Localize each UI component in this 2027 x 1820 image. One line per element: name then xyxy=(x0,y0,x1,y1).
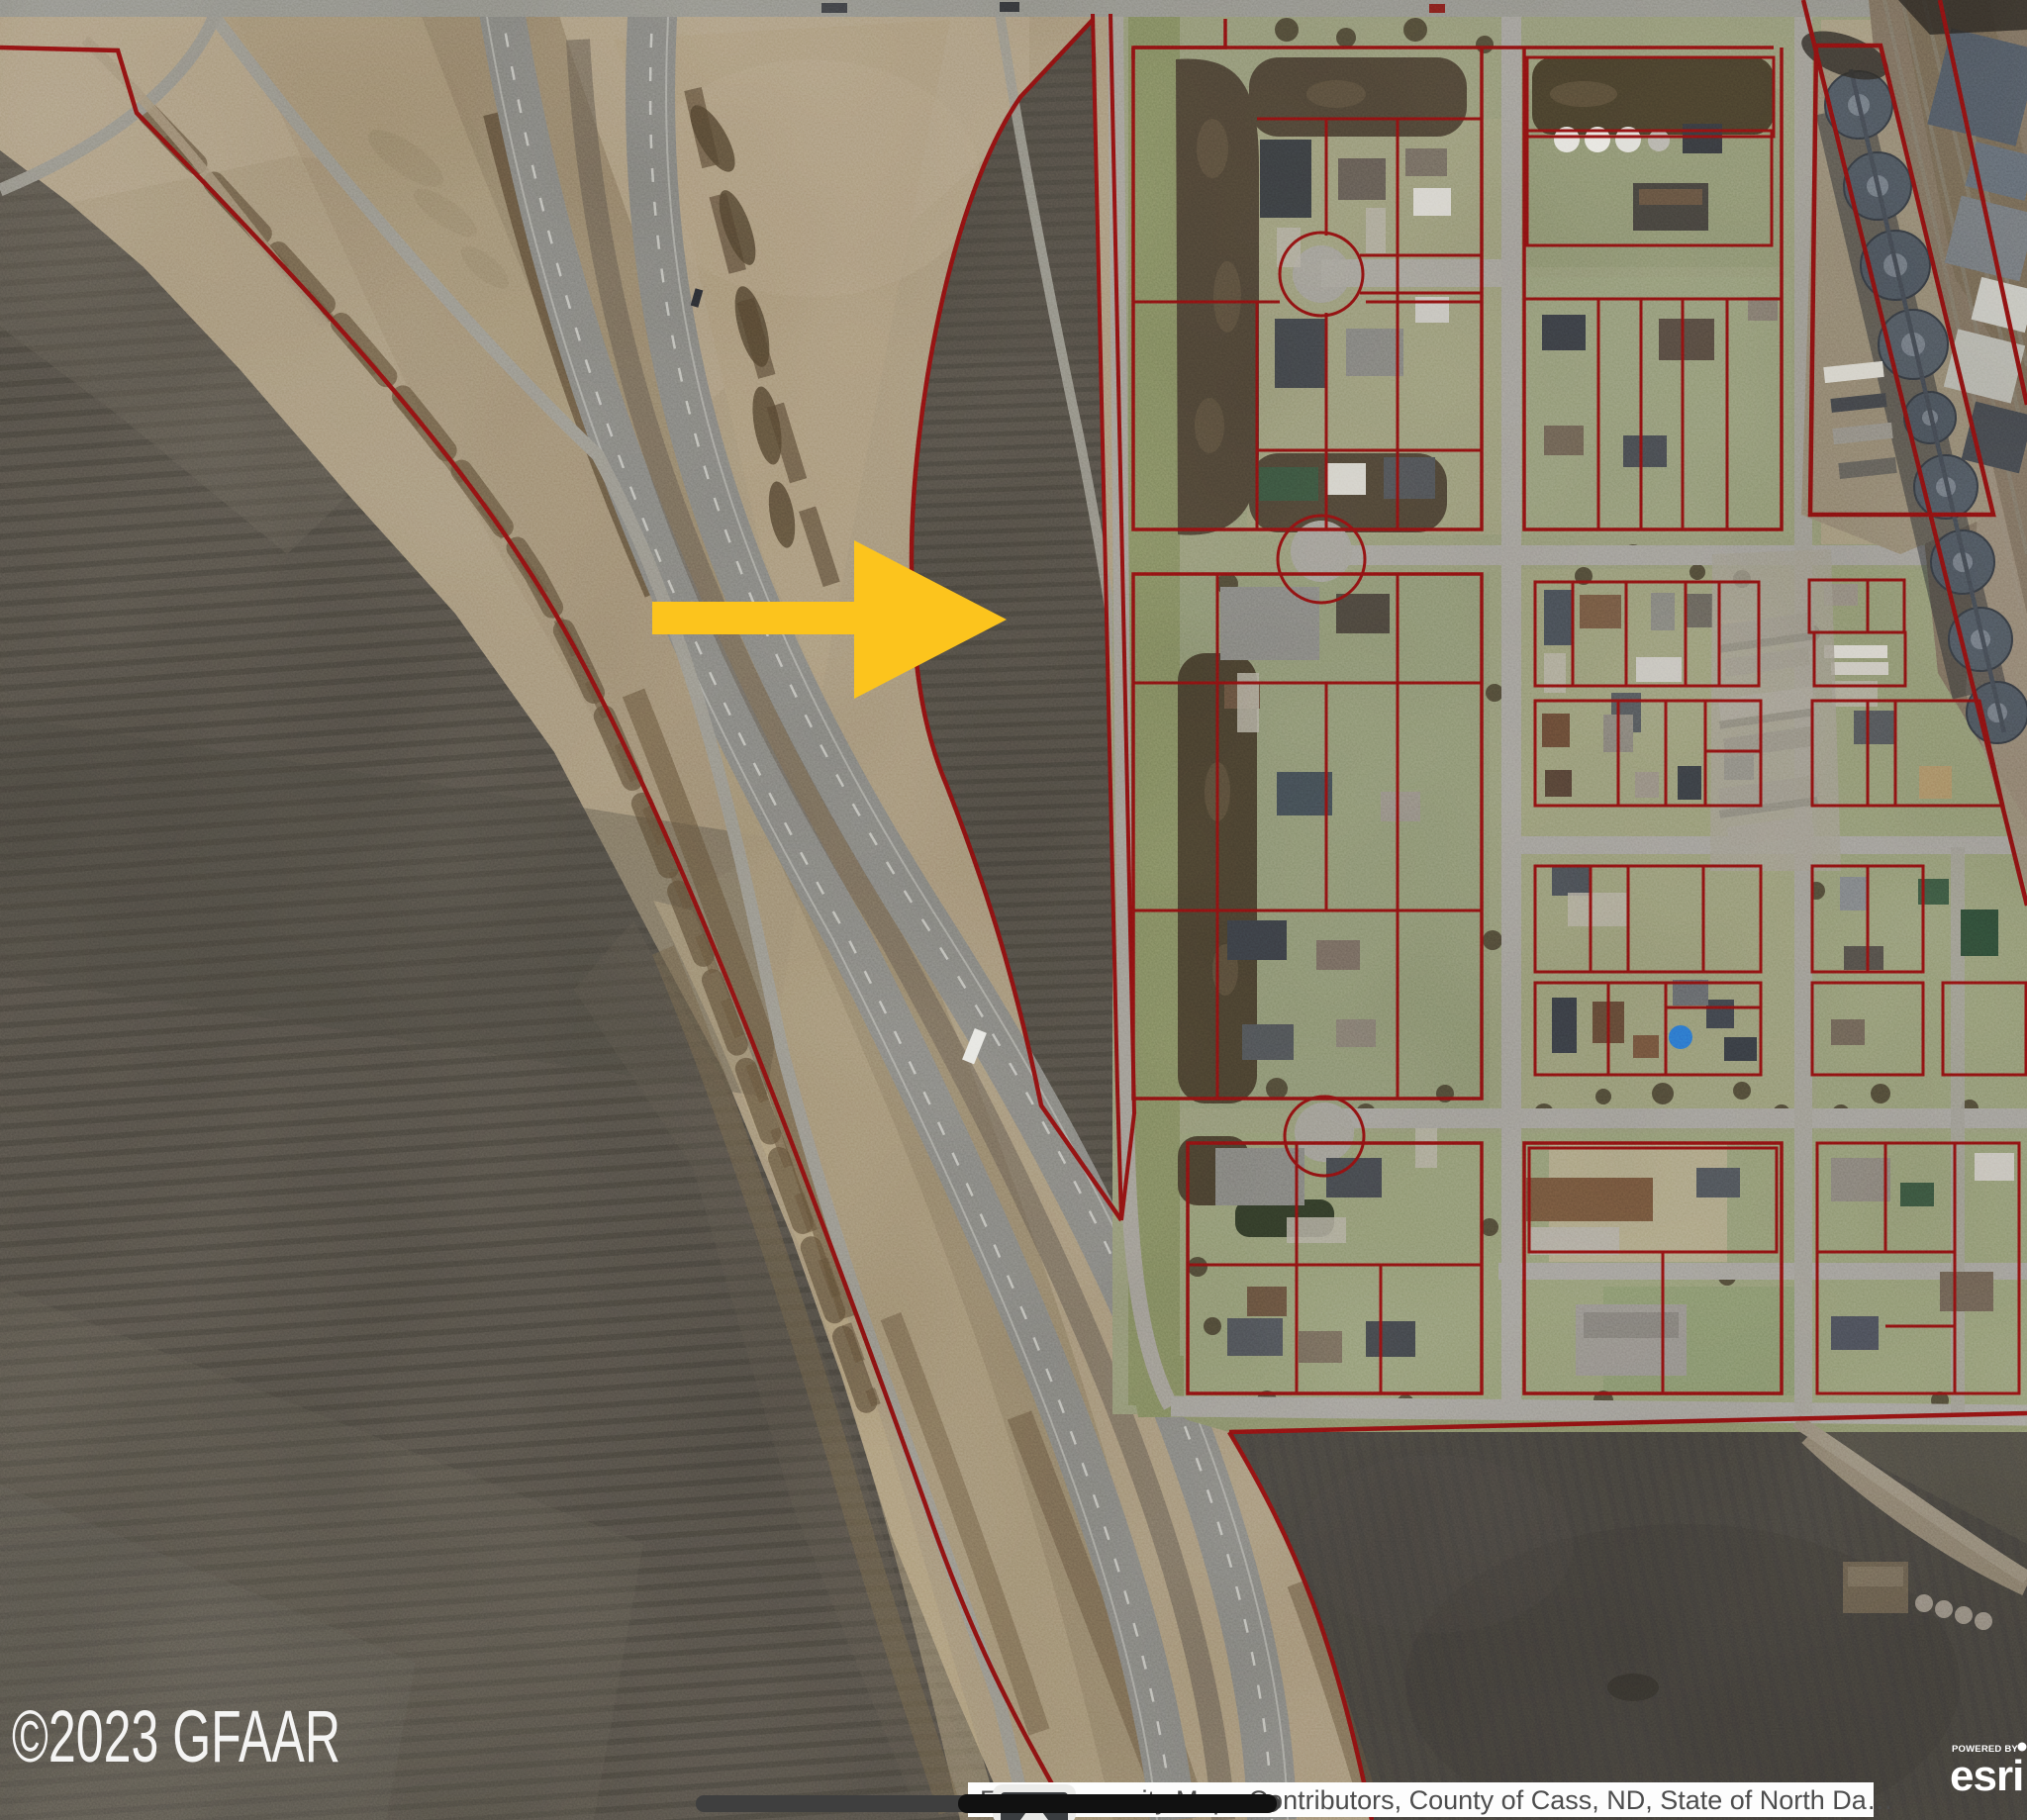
svg-text:esri: esri xyxy=(1950,1752,2023,1800)
svg-text:©2023 GFAAR: ©2023 GFAAR xyxy=(12,1695,340,1777)
